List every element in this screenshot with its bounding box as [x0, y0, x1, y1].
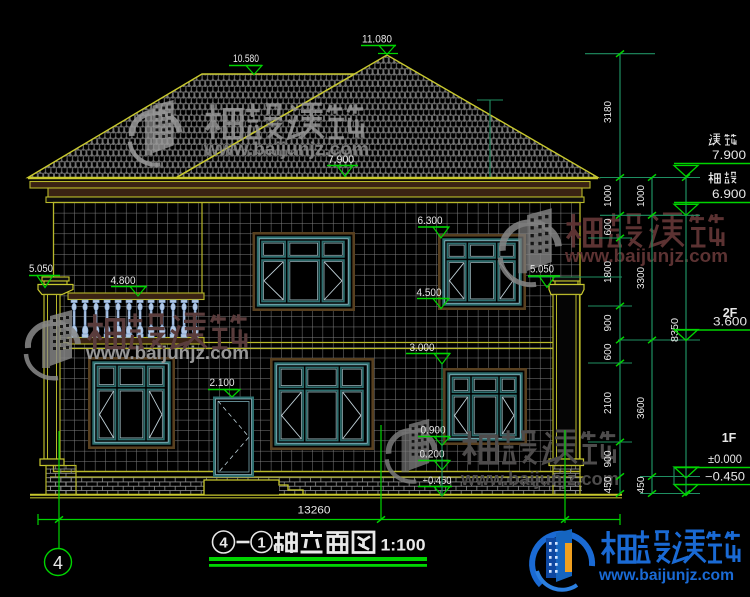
svg-text:3600: 3600 [635, 397, 647, 419]
svg-text:900: 900 [602, 314, 614, 331]
svg-text:4: 4 [219, 535, 228, 552]
svg-text:1800: 1800 [602, 261, 614, 283]
svg-text:450: 450 [635, 476, 647, 493]
svg-text:−0.450: −0.450 [423, 475, 452, 487]
svg-text:2.100: 2.100 [210, 377, 235, 389]
svg-text:www.baijunjz.com: www.baijunjz.com [564, 246, 728, 266]
svg-text:600: 600 [602, 343, 614, 360]
svg-text:1: 1 [257, 535, 265, 552]
svg-text:0.200: 0.200 [420, 449, 445, 461]
svg-text:3.000: 3.000 [410, 342, 435, 354]
svg-text:7.900: 7.900 [328, 154, 354, 166]
svg-text:6.900: 6.900 [712, 189, 746, 201]
svg-text:450: 450 [602, 476, 614, 493]
svg-text:13260: 13260 [298, 505, 331, 517]
svg-text:1000: 1000 [635, 185, 647, 207]
svg-text:−0.450: −0.450 [705, 472, 745, 484]
svg-text:3300: 3300 [635, 267, 647, 289]
svg-text:4.500: 4.500 [417, 287, 442, 299]
svg-text:±0.000: ±0.000 [708, 454, 742, 466]
svg-text:1000: 1000 [602, 185, 614, 207]
svg-text:7.900: 7.900 [712, 150, 746, 162]
svg-text:5.050: 5.050 [530, 264, 554, 276]
svg-text:3180: 3180 [602, 101, 614, 123]
svg-text:4: 4 [53, 553, 63, 573]
svg-text:www.baijunjz.com: www.baijunjz.com [85, 343, 249, 363]
svg-text:1F: 1F [722, 431, 737, 445]
svg-text:10.580: 10.580 [233, 53, 259, 65]
svg-text:www.baijunjz.com: www.baijunjz.com [460, 469, 619, 489]
svg-text:600: 600 [602, 218, 614, 235]
svg-text:6.300: 6.300 [418, 215, 443, 227]
svg-text:1:100: 1:100 [381, 536, 426, 555]
svg-text:900: 900 [602, 450, 614, 467]
svg-text:5.050: 5.050 [29, 263, 53, 275]
svg-text:2F: 2F [723, 306, 738, 320]
svg-text:11.080: 11.080 [362, 34, 392, 46]
svg-text:2100: 2100 [602, 392, 614, 414]
svg-text:4.800: 4.800 [111, 275, 136, 287]
svg-text:www.baijunjz.com: www.baijunjz.com [598, 567, 734, 584]
